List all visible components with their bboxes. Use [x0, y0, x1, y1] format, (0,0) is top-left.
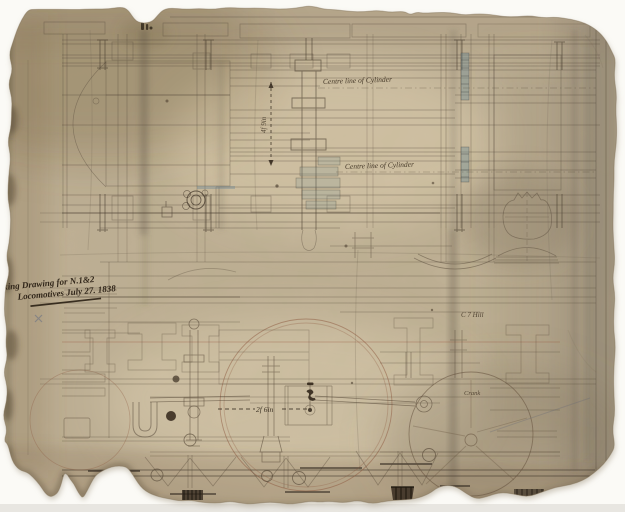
svg-text:2f 6in: 2f 6in — [256, 405, 274, 414]
svg-text:C 7 Hill: C 7 Hill — [461, 311, 484, 319]
svg-text:4f 9in: 4f 9in — [260, 116, 268, 133]
svg-text:Crank: Crank — [464, 390, 480, 397]
